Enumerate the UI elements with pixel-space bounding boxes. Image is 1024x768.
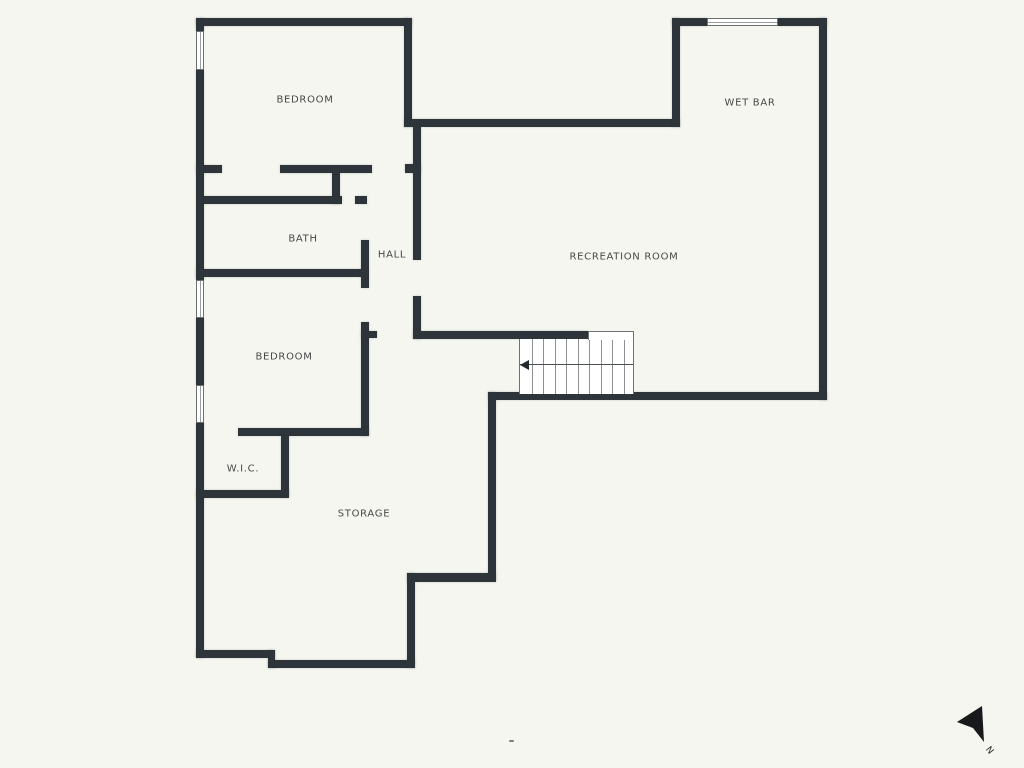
window-glass-line — [200, 32, 201, 69]
room-label-storage: STORAGE — [338, 509, 391, 520]
window — [196, 385, 204, 423]
room-label-wic: W.I.C. — [227, 464, 259, 475]
window-glass-line — [200, 281, 201, 317]
floor-plan-canvas: N BEDROOMWET BARBATHHALLRECREATION ROOMB… — [0, 0, 1024, 768]
wall — [404, 119, 680, 127]
wall — [238, 428, 369, 436]
room-label-bath: BATH — [288, 234, 317, 245]
wall — [281, 436, 289, 497]
north-label: N — [983, 745, 995, 756]
window — [196, 31, 204, 70]
wall — [407, 573, 496, 582]
wall — [355, 196, 367, 204]
north-arrow-icon: N — [940, 690, 1010, 765]
room-label-recreation-room: RECREATION ROOM — [570, 252, 679, 263]
wall — [196, 18, 412, 26]
wall — [361, 331, 377, 338]
wall — [196, 318, 204, 385]
room-label-bedroom-1: BEDROOM — [276, 95, 333, 106]
wall — [404, 18, 412, 127]
wall — [413, 331, 588, 339]
wall — [413, 127, 421, 260]
wall — [361, 240, 369, 288]
stair-direction-line — [520, 364, 633, 365]
window-glass-line — [200, 386, 201, 422]
artifact-dash — [509, 740, 514, 742]
wall — [204, 196, 342, 204]
room-label-wet-bar: WET BAR — [724, 98, 775, 109]
stair-tread — [624, 339, 625, 394]
wall — [819, 18, 827, 400]
stair-down-arrow-icon — [520, 360, 529, 370]
stair-upper-edge — [588, 331, 634, 340]
stair-tread — [589, 339, 590, 394]
wall — [196, 165, 222, 173]
wall — [407, 573, 415, 668]
wall — [196, 423, 204, 658]
wall — [672, 18, 708, 26]
window — [196, 280, 204, 318]
wall — [196, 70, 204, 280]
stair-tread — [555, 339, 556, 394]
staircase — [519, 339, 634, 394]
wall — [672, 18, 680, 127]
window — [707, 18, 778, 26]
north-arrow-shape — [957, 706, 984, 742]
room-label-hall: HALL — [378, 250, 406, 261]
wall — [196, 490, 289, 498]
window-glass-line — [708, 22, 777, 23]
stair-tread — [543, 339, 544, 394]
wall — [280, 165, 372, 173]
stair-tread — [601, 339, 602, 394]
room-label-bedroom-2: BEDROOM — [255, 352, 312, 363]
stair-tread — [612, 339, 613, 394]
wall — [196, 18, 204, 32]
wall — [488, 392, 496, 580]
wall — [196, 650, 275, 658]
wall — [196, 269, 368, 277]
stair-tread — [532, 339, 533, 394]
stair-tread — [566, 339, 567, 394]
stair-tread — [578, 339, 579, 394]
wall — [361, 322, 369, 436]
wall — [268, 660, 415, 668]
